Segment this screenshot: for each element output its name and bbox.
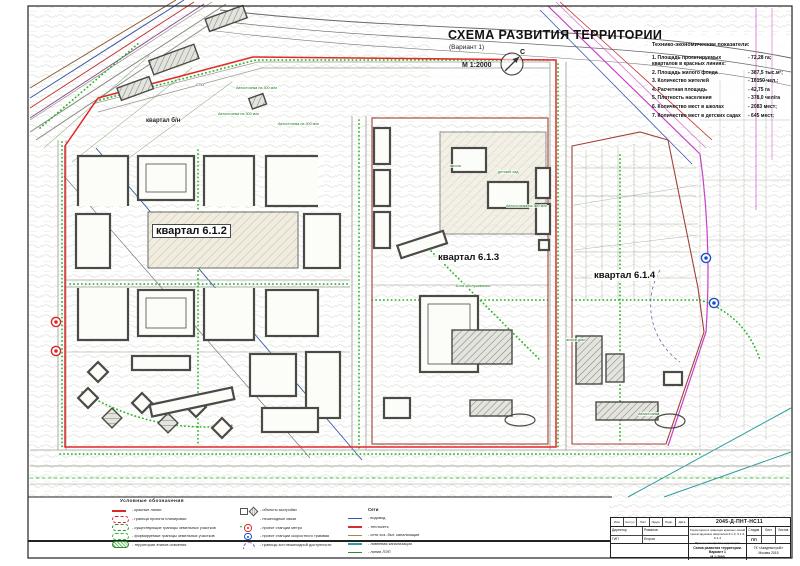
stamp-name: Егоров	[643, 536, 655, 544]
stamp-header-cell: №док.	[650, 518, 663, 526]
sheet-number	[762, 536, 777, 544]
legend-item: - объекты застройки	[240, 507, 348, 514]
green-oval-dash-icon	[112, 533, 129, 540]
indicator-value: - 72,28 га;	[748, 55, 771, 61]
stamp-role: ГИП	[611, 536, 643, 544]
indicator-row: 4. Расчетная площадь- 42,75 га	[652, 87, 796, 93]
legend-item-label: - существующие границы земельных участко…	[132, 526, 216, 530]
networks-header: Сети	[368, 507, 442, 512]
page-title: СХЕМА РАЗВИТИЯ ТЕРРИТОРИИ	[448, 28, 662, 42]
indicator-value: - 378,0 чел/га	[748, 95, 780, 101]
legend-item-label: - красные линии	[132, 508, 161, 512]
legend-item: - границы зон пешеходной доступности	[240, 541, 348, 548]
organization-cell: ГК «Академстрой» Москва 2015	[747, 544, 790, 560]
red-line-icon	[112, 507, 129, 514]
legend-item: - пешеходные связи	[240, 516, 348, 523]
indicator-label: 7. Количество мест в детских садах	[652, 113, 748, 119]
green-oval-dashdot-icon	[112, 524, 129, 531]
stamp-role: Директор	[611, 527, 643, 535]
legend-item: - граница проекта планировки	[112, 516, 240, 523]
sheet-title-line2: М 1:2000	[689, 555, 746, 560]
indicator-value: - 645 мест;	[748, 113, 774, 119]
stamp-left-bottom	[611, 544, 689, 560]
legend-item-label: - формируемые границы земельных участков	[132, 534, 215, 538]
legend-item-label: - проект станции скоростного трамвая	[260, 534, 329, 538]
title-scale: М 1:2000	[462, 62, 492, 69]
stamp-header-cell: Подп.	[663, 518, 676, 526]
indicator-value: - 387,5 тыс.м²;	[748, 70, 783, 76]
stamp-signature-row: ДиректорРоманов	[611, 527, 688, 536]
legend-item: - ливневая канализация	[348, 540, 442, 547]
document-number: 2045-Д-ПНТ-НС11	[689, 518, 790, 526]
indicators-header: Технико-экономические показатели:	[652, 42, 796, 48]
drawing-sheet: .bld{fill:#fcfcf9;stroke:#4a4a46;stroke-…	[0, 0, 800, 566]
legend-item-label: - граница проекта планировки	[132, 517, 186, 521]
legend-item-label: - территории этапов освоения	[132, 543, 186, 547]
legend-item-label: - ливневая канализация	[368, 542, 412, 546]
net-icon	[348, 523, 365, 530]
legend-column-boundaries: - красные линии- граница проекта планиро…	[112, 507, 240, 556]
tram-icon	[240, 533, 257, 540]
stage-header-cell: Стадия	[747, 527, 762, 535]
red-oval-dash-icon	[112, 516, 129, 523]
indicator-value: - 42,75 га	[748, 87, 770, 93]
legend-header: Условные обозначения	[120, 499, 184, 504]
legend-item: - территории этапов освоения	[112, 541, 240, 548]
sheet-title-line1: Схема развития территории. Вариант 1	[689, 546, 746, 556]
project-description-line: проектируемых кварталов 6.1.2, 6.1.3, 6.…	[689, 532, 746, 540]
indicators-list: 1. Площадь проектируемых кварталов в кра…	[652, 55, 796, 119]
stamp-header-cell: Изм.	[611, 518, 624, 526]
legend-item: - формируемые границы земельных участков	[112, 533, 240, 540]
indicator-row: 1. Площадь проектируемых кварталов в кра…	[652, 55, 796, 67]
stage-table: СтадияЛистЛистов ПП	[747, 527, 790, 543]
legend-item: - линии ЛЭП	[348, 549, 442, 556]
legend-item: - теплосеть	[348, 523, 442, 530]
green-oval-hatch-icon	[112, 541, 129, 548]
indicator-label: 6. Количество мест в школах	[652, 104, 748, 110]
legend-item-label: - объекты застройки	[260, 508, 297, 512]
metro-icon	[240, 524, 257, 531]
stamp-header-cells: Изм.Кол.учЛист№док.Подп.Дата	[611, 518, 689, 526]
indicator-value: - 16150 чел.;	[748, 78, 778, 84]
indicator-row: 6. Количество мест в школах- 2083 мест;	[652, 104, 796, 110]
indicator-row: 3. Количество жителей- 16150 чел.;	[652, 78, 796, 84]
legend-item: - существующие границы земельных участко…	[112, 524, 240, 531]
legend-item-label: - сети хоз.-быт. канализации	[368, 533, 419, 537]
project-description: Территория в границах красных линийпроек…	[689, 527, 747, 543]
stage-value: ПП	[747, 536, 762, 544]
title-block: Изм.Кол.учЛист№док.Подп.Дата 2045-Д-ПНТ-…	[610, 517, 791, 558]
net-icon	[348, 549, 365, 556]
title-variant: (Вариант 1)	[449, 44, 484, 51]
stage-header-cell: Лист	[762, 527, 777, 535]
legend-item: - сети хоз.-быт. канализации	[348, 532, 442, 539]
legend-item: - проект станции метро	[240, 524, 348, 531]
net-icon	[348, 515, 365, 522]
legend-column-networks: Сети - водовод- теплосеть- сети хоз.-быт…	[348, 507, 442, 556]
legend-item-label: - границы зон пешеходной доступности	[260, 543, 331, 547]
green-dots-icon	[240, 516, 257, 523]
indicator-label: 1. Площадь проектируемых кварталов в кра…	[652, 55, 748, 67]
svg-text:С: С	[520, 49, 525, 56]
stamp-name: Романов	[643, 527, 658, 535]
legend-item: - водовод	[348, 515, 442, 522]
sheet-title-cell: Схема развития территории. Вариант 1 М 1…	[689, 544, 747, 560]
technical-indicators: Технико-экономические показатели: 1. Пло…	[652, 42, 796, 121]
stamp-header-cell: Кол.уч	[624, 518, 637, 526]
stamp-signature-rows: ДиректорРомановГИПЕгоров	[611, 527, 689, 543]
stage-header-cell: Листов	[776, 527, 790, 535]
arc-icon	[240, 541, 257, 548]
indicator-label: 3. Количество жителей	[652, 78, 748, 84]
indicator-row: 5. Плотность населения- 378,0 чел/га	[652, 95, 796, 101]
indicator-label: 4. Расчетная площадь	[652, 87, 748, 93]
legend-item-label: - теплосеть	[368, 525, 389, 529]
objects-icon	[240, 507, 257, 514]
indicator-row: 2. Площадь жилого фонда- 387,5 тыс.м²;	[652, 70, 796, 76]
legend-item: - красные линии	[112, 507, 240, 514]
net-icon	[348, 532, 365, 539]
legend-item-label: - линии ЛЭП	[368, 550, 391, 554]
legend-item-label: - проект станции метро	[260, 526, 302, 530]
indicator-label: 2. Площадь жилого фонда	[652, 70, 748, 76]
indicator-row: 7. Количество мест в детских садах- 645 …	[652, 113, 796, 119]
stamp-header-cell: Лист	[637, 518, 650, 526]
organization-city-year: Москва 2015	[747, 551, 790, 556]
legend-column-objects: - объекты застройки- пешеходные связи- п…	[240, 507, 348, 556]
sheets-total	[776, 536, 790, 544]
indicator-label: 5. Плотность населения	[652, 95, 748, 101]
indicator-value: - 2083 мест;	[748, 104, 777, 110]
stamp-header-cell: Дата	[676, 518, 688, 526]
legend-item-label: - пешеходные связи	[260, 517, 296, 521]
legend-item: - проект станции скоростного трамвая	[240, 533, 348, 540]
legend: Условные обозначения - красные линии- гр…	[112, 499, 442, 541]
stamp-signature-row: ГИПЕгоров	[611, 536, 688, 544]
legend-item-label: - водовод	[368, 516, 385, 520]
net-icon	[348, 540, 365, 547]
